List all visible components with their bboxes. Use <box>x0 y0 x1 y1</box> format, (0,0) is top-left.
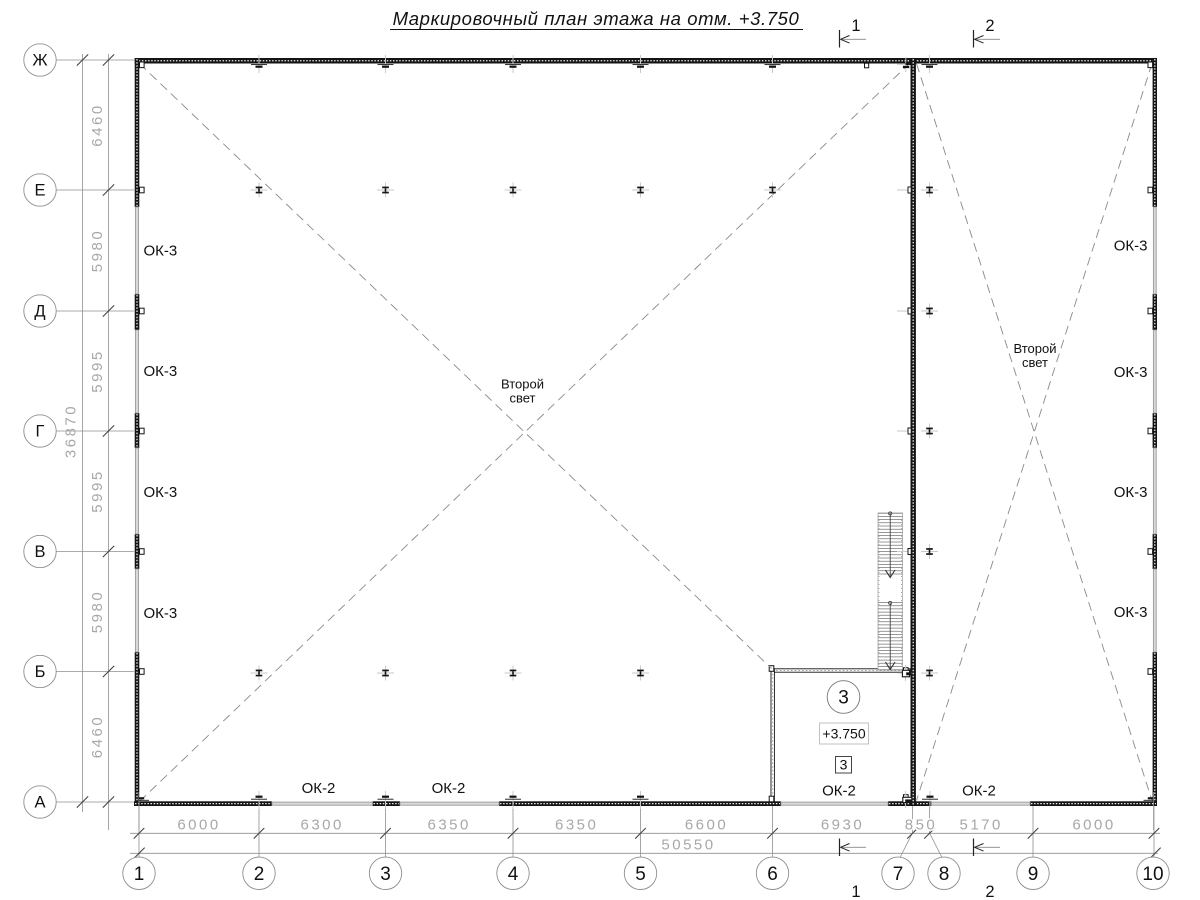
svg-text:5995: 5995 <box>89 469 106 512</box>
svg-text:Е: Е <box>34 182 45 200</box>
svg-text:ОК-2: ОК-2 <box>962 783 996 800</box>
svg-text:Второй: Второй <box>501 377 544 392</box>
svg-text:6600: 6600 <box>685 817 728 834</box>
svg-text:свет: свет <box>509 391 535 406</box>
svg-text:3: 3 <box>380 864 391 885</box>
svg-text:+3.750: +3.750 <box>822 726 865 742</box>
svg-text:Маркировочный план этажа на от: Маркировочный план этажа на отм. +3.750 <box>393 8 800 29</box>
svg-text:2: 2 <box>985 883 994 900</box>
svg-text:36870: 36870 <box>63 404 80 458</box>
svg-text:Б: Б <box>35 663 46 681</box>
svg-text:6460: 6460 <box>89 715 106 758</box>
svg-text:Ж: Ж <box>32 52 48 70</box>
svg-text:1: 1 <box>851 17 860 35</box>
svg-text:ОК-3: ОК-3 <box>1114 604 1148 621</box>
svg-text:2: 2 <box>985 17 994 35</box>
svg-text:В: В <box>34 543 45 561</box>
svg-text:3: 3 <box>838 688 849 709</box>
svg-text:6350: 6350 <box>428 817 471 834</box>
svg-text:6: 6 <box>767 864 778 885</box>
svg-text:7: 7 <box>893 864 904 885</box>
svg-text:ОК-3: ОК-3 <box>144 243 178 260</box>
svg-text:5170: 5170 <box>960 817 1003 834</box>
svg-text:А: А <box>34 794 45 812</box>
svg-text:3: 3 <box>840 757 848 773</box>
svg-text:Второй: Второй <box>1014 341 1057 356</box>
svg-text:6000: 6000 <box>1072 817 1115 834</box>
svg-text:1: 1 <box>134 864 145 885</box>
svg-text:6300: 6300 <box>301 817 344 834</box>
svg-text:ОК-2: ОК-2 <box>302 780 336 797</box>
svg-text:ОК-3: ОК-3 <box>1114 484 1148 501</box>
svg-text:9: 9 <box>1028 864 1039 885</box>
svg-text:6460: 6460 <box>89 103 106 146</box>
svg-text:свет: свет <box>1022 355 1048 370</box>
svg-text:4: 4 <box>508 864 519 885</box>
svg-text:ОК-2: ОК-2 <box>432 780 466 797</box>
svg-text:2: 2 <box>254 864 265 885</box>
svg-text:ОК-3: ОК-3 <box>144 363 178 380</box>
svg-text:Г: Г <box>36 423 45 441</box>
svg-text:6930: 6930 <box>821 817 864 834</box>
svg-text:6000: 6000 <box>177 817 220 834</box>
svg-text:Д: Д <box>34 303 45 321</box>
svg-text:6350: 6350 <box>555 817 598 834</box>
svg-text:ОК-3: ОК-3 <box>144 605 178 622</box>
svg-text:850: 850 <box>905 817 938 834</box>
svg-text:5: 5 <box>635 864 646 885</box>
svg-text:8: 8 <box>939 864 950 885</box>
svg-text:ОК-3: ОК-3 <box>1114 364 1148 381</box>
svg-text:10: 10 <box>1142 864 1163 885</box>
svg-text:5980: 5980 <box>89 590 106 633</box>
svg-text:1: 1 <box>851 883 860 900</box>
svg-text:5995: 5995 <box>89 349 106 392</box>
svg-text:ОК-2: ОК-2 <box>822 783 856 800</box>
svg-text:5980: 5980 <box>89 229 106 272</box>
svg-text:ОК-3: ОК-3 <box>144 484 178 501</box>
svg-text:ОК-3: ОК-3 <box>1114 238 1148 255</box>
svg-text:50550: 50550 <box>661 837 715 854</box>
